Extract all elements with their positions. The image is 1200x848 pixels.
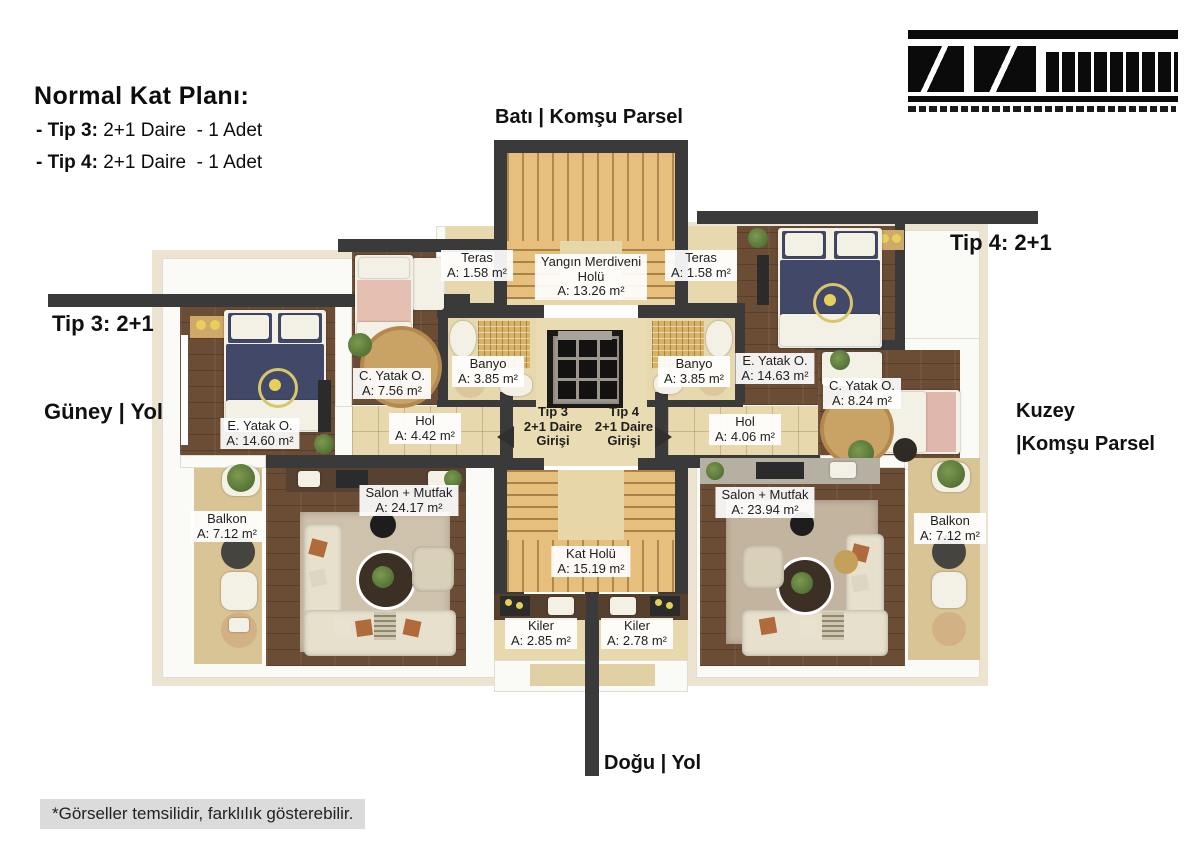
pillow [785, 233, 823, 256]
room-name: Salon + Mutfak [365, 486, 452, 501]
plant-icon [830, 350, 850, 370]
bed-decor-dot [269, 379, 281, 391]
wardrobe [412, 258, 444, 310]
cushion [309, 569, 328, 588]
wall [675, 458, 688, 604]
tv-unit [318, 380, 331, 432]
room-label-balcony-right: Balkon A: 7.12 m² [914, 513, 986, 544]
compass-label-west: Batı | Komşu Parsel [495, 106, 683, 129]
room-area: A: 14.63 m² [741, 369, 808, 384]
logo-bottom-bar [908, 96, 1178, 102]
page-title: Normal Kat Planı: [34, 82, 249, 111]
cushion [403, 619, 422, 638]
logo-top-bar [908, 30, 1178, 39]
compass-label-east: Doğu | Yol [604, 752, 701, 775]
legend-tip3-prefix: - Tip 3: [36, 120, 98, 141]
bed-decor-dot [824, 294, 836, 306]
entrance-line: Tip 3 [524, 405, 582, 420]
room-name: Teras [447, 251, 507, 266]
cushion [333, 617, 352, 636]
plant-icon [706, 462, 724, 480]
burner-dot [505, 599, 512, 606]
room-name: Banyo [664, 357, 724, 372]
room-name: Holü [541, 270, 641, 285]
room-label-child-bedroom-left: C. Yatak O. A: 7.56 m² [353, 368, 431, 399]
room-area: A: 7.12 m² [197, 527, 257, 542]
room-name: Kat Holü [557, 547, 624, 562]
cooktop-icon [756, 462, 804, 479]
cooktop-icon [500, 596, 530, 616]
plan-legend-tip3: - Tip 3: 2+1 Daire - 1 Adet [36, 120, 262, 142]
room-name: Teras [671, 251, 731, 266]
pillow [231, 315, 269, 339]
unit-marker-label-tip4: Tip 4: 2+1 [950, 230, 1052, 256]
basket [932, 612, 966, 646]
room-area: A: 14.60 m² [226, 434, 293, 449]
elevator-cabin [553, 336, 619, 404]
room-name: Yangın Merdiveni [541, 255, 641, 270]
fire-stairs-landing [507, 153, 675, 241]
wall [494, 458, 507, 604]
room-label-pantry-left: Kiler A: 2.85 m² [505, 618, 577, 649]
unit-marker-bar-tip4 [697, 211, 1038, 224]
logo-glyph-block [974, 46, 1036, 92]
room-label-bathroom-left: Banyo A: 3.85 m² [452, 356, 524, 387]
decor-dot [210, 320, 220, 330]
plant-icon [748, 228, 768, 248]
room-area: A: 7.56 m² [359, 384, 425, 399]
disclaimer-bar: *Görseller temsilidir, farklılık göstere… [40, 799, 365, 829]
arrow-left-icon [497, 426, 514, 448]
room-name: C. Yatak O. [829, 379, 895, 394]
entrance-label-tip3: Tip 3 2+1 Daire Girişi [518, 404, 588, 450]
side-table [834, 550, 858, 574]
room-label-pantry-right: Kiler A: 2.78 m² [601, 618, 673, 649]
kitchen-sink-icon [830, 462, 856, 478]
cushion [355, 619, 373, 637]
bed-blanket-pink [357, 280, 411, 322]
room-name: Kiler [511, 619, 571, 634]
sink-icon [548, 597, 574, 615]
room-area: A: 2.78 m² [607, 634, 667, 649]
balcony-chair [221, 572, 257, 610]
entrance-line: Girişi [524, 434, 582, 449]
room-area: A: 4.42 m² [395, 429, 455, 444]
pillow [837, 233, 875, 256]
tv-unit [757, 255, 769, 305]
wall-divider-stub [585, 592, 599, 776]
curtain [181, 335, 188, 445]
decor-dot [892, 234, 901, 243]
room-name: Balkon [197, 512, 257, 527]
room-name: Hol [395, 414, 455, 429]
armchair-left [412, 546, 454, 592]
room-area: A: 15.19 m² [557, 562, 624, 577]
toilet-icon [706, 321, 732, 357]
entrance-line: Girişi [595, 434, 653, 449]
entrance-line: Tip 4 [595, 405, 653, 420]
wall-strip [180, 455, 266, 468]
cooktop-icon [650, 596, 680, 616]
room-name: Salon + Mutfak [721, 488, 808, 503]
room-area: A: 7.12 m² [920, 529, 980, 544]
burner-dot [666, 602, 673, 609]
room-name: E. Yatak O. [226, 419, 293, 434]
room-label-hall-left: Hol A: 4.42 m² [389, 413, 461, 444]
logo-stripe-block [1046, 52, 1178, 92]
entrance-line: 2+1 Daire [595, 420, 653, 435]
bed-dark-cushion [893, 438, 917, 462]
room-name: E. Yatak O. [741, 354, 808, 369]
room-label-child-bedroom-right: C. Yatak O. A: 8.24 m² [823, 378, 901, 409]
legend-tip4-rest: 2+1 Daire - 1 Adet [98, 152, 262, 173]
room-area: A: 2.85 m² [511, 634, 571, 649]
room-label-floor-hall: Kat Holü A: 15.19 m² [551, 546, 630, 577]
wall [266, 455, 500, 468]
logo-glyph-block [908, 46, 964, 92]
decor-dot [196, 320, 206, 330]
cushion-striped [374, 612, 396, 640]
plan-legend-tip4: - Tip 4: 2+1 Daire - 1 Adet [36, 152, 262, 174]
plant-icon [227, 464, 255, 492]
room-area: A: 1.58 m² [671, 266, 731, 281]
room-label-hall-right: Hol A: 4.06 m² [709, 414, 781, 445]
plant-icon [937, 460, 965, 488]
cushion [759, 617, 778, 636]
room-label-master-bedroom-left: E. Yatak O. A: 14.60 m² [220, 418, 299, 449]
room-name: Banyo [458, 357, 518, 372]
armchair-right [742, 545, 784, 589]
plant-icon [348, 333, 372, 357]
wall [638, 305, 688, 318]
room-area: A: 1.58 m² [447, 266, 507, 281]
room-label-terrace-left: Teras A: 1.58 m² [441, 250, 513, 281]
room-label-living-left: Salon + Mutfak A: 24.17 m² [359, 485, 458, 516]
kitchen-sink-icon [298, 471, 320, 487]
entrance-label-tip4: Tip 4 2+1 Daire Girişi [589, 404, 659, 450]
compass-label-north-line2: |Komşu Parsel [1016, 433, 1155, 456]
balcony-chair [932, 572, 966, 608]
plant-icon [314, 434, 334, 454]
room-area: A: 3.85 m² [458, 372, 518, 387]
pillow [359, 258, 409, 278]
room-name: C. Yatak O. [359, 369, 425, 384]
sink-icon [610, 597, 636, 615]
compass-label-south: Güney | Yol [44, 399, 163, 425]
room-label-bathroom-right: Banyo A: 3.85 m² [658, 356, 730, 387]
legend-tip3-rest: 2+1 Daire - 1 Adet [98, 120, 262, 141]
legend-tip4-prefix: - Tip 4: [36, 152, 98, 173]
room-name: Balkon [920, 514, 980, 529]
room-label-balcony-left: Balkon A: 7.12 m² [191, 511, 263, 542]
company-logo [908, 24, 1180, 110]
logo-tagline [908, 106, 1176, 112]
room-name: Hol [715, 415, 775, 430]
wall [675, 140, 688, 318]
cushion [799, 617, 817, 635]
room-area: A: 13.26 m² [541, 284, 641, 299]
room-name: Kiler [607, 619, 667, 634]
cushion [851, 574, 870, 593]
room-area: A: 24.17 m² [365, 501, 452, 516]
pillow [281, 315, 319, 339]
burner-dot [516, 602, 523, 609]
room-label-living-right: Salon + Mutfak A: 23.94 m² [715, 487, 814, 518]
cushion-striped [822, 612, 844, 640]
elevator-mechanism [558, 331, 612, 340]
bed-blanket-pink [926, 392, 956, 452]
entrance-line: 2+1 Daire [524, 420, 582, 435]
unit-marker-label-tip3: Tip 3: 2+1 [52, 311, 154, 337]
table-decor [791, 572, 813, 594]
room-area: A: 23.94 m² [721, 503, 808, 518]
toilet-icon [450, 321, 476, 357]
wall [494, 140, 507, 318]
compass-label-north-line1: Kuzey [1016, 400, 1075, 423]
wall [494, 305, 544, 318]
towel [229, 618, 249, 632]
wall [494, 140, 688, 153]
room-area: A: 8.24 m² [829, 394, 895, 409]
table-decor [372, 566, 394, 588]
room-label-master-bedroom-right: E. Yatak O. A: 14.63 m² [735, 353, 814, 384]
floor-plan-page: Normal Kat Planı: - Tip 3: 2+1 Daire - 1… [0, 0, 1200, 848]
room-area: A: 3.85 m² [664, 372, 724, 387]
room-label-fire-stairs: Yangın Merdiveni Holü A: 13.26 m² [535, 254, 647, 300]
room-area: A: 4.06 m² [715, 430, 775, 445]
burner-dot [655, 599, 662, 606]
room-label-terrace-right: Teras A: 1.58 m² [665, 250, 737, 281]
